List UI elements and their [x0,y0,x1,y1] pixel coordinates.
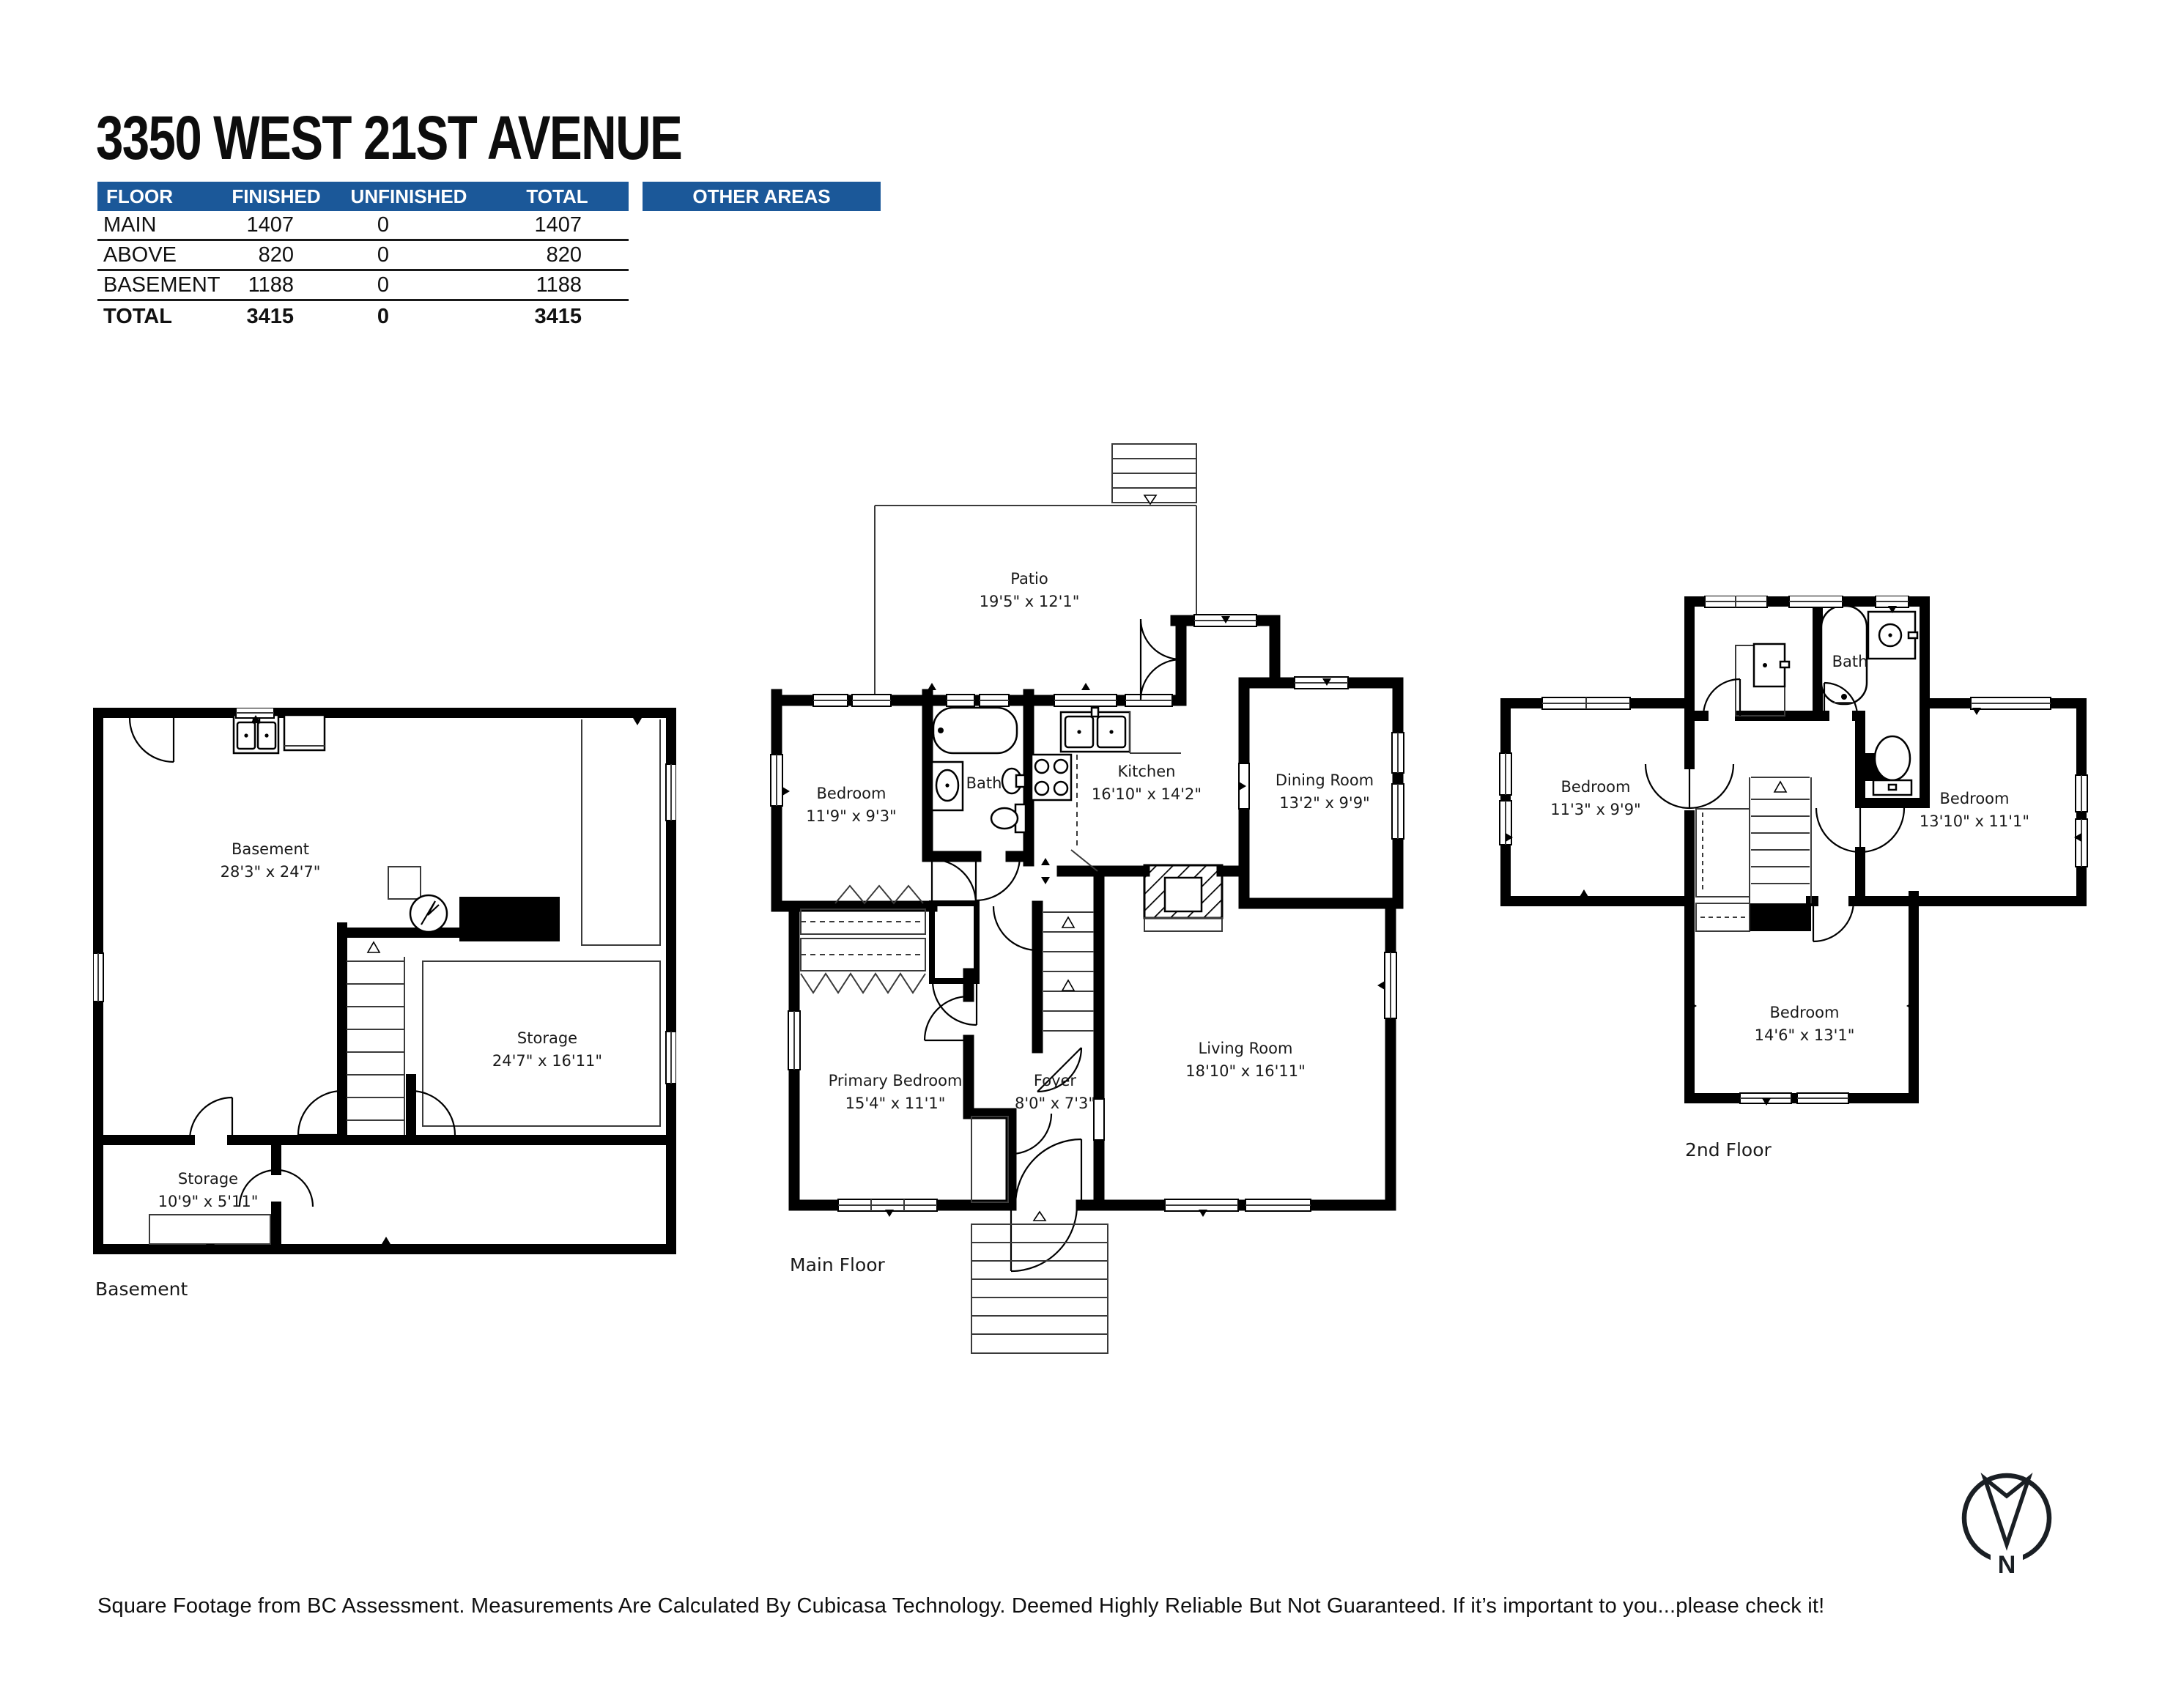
vanity-left-icon [1754,644,1789,686]
room-label-kitchen: Kitchen [1118,763,1176,780]
basement-walls [98,713,671,1249]
room-label-bedroom: Bedroom [817,785,886,802]
deck-stairs-icon [1112,444,1196,504]
pedestal-sink-icon [932,762,963,810]
main-stairs-icon [1043,912,1094,1031]
col-header-floor: FLOOR [97,185,221,208]
fireplace-icon [1144,865,1222,931]
row-above-unfinished: 0 [332,243,486,267]
room-dims-living: 18'10" x 16'11" [1185,1062,1306,1080]
row-total-finished: 3415 [221,305,332,329]
area-table: FLOOR FINISHED UNFINISHED TOTAL MAIN 140… [97,182,629,332]
room-dims-storage-2: 10'9" x 5'11" [158,1193,259,1210]
wall-sink-icon [1002,769,1025,793]
other-areas-header: OTHER AREAS [643,182,881,211]
electrical-panel-icon [410,895,447,932]
room-dims-dining: 13'2" x 9'9" [1279,794,1369,812]
appliance-icon [284,715,325,750]
page-title: 3350 WEST 21ST AVENUE [96,103,681,174]
row-main-finished: 1407 [221,213,332,237]
floorplan-label-second: 2nd Floor [1685,1139,1772,1160]
stove-icon [1032,755,1097,871]
table-row-total: TOTAL 3415 0 3415 [97,301,629,332]
row-main-unfinished: 0 [332,213,486,237]
row-basement-unfinished: 0 [332,273,486,297]
table-row-above: ABOVE 820 0 820 [97,241,629,271]
room-dims-kitchen: 16'10" x 14'2" [1092,785,1202,803]
second-floorplan: Bath Bedroom 11'3" x 9'9" Bedroom 13'10"… [1498,596,2095,1108]
room-dims-basement: 28'3" x 24'7" [221,863,321,881]
row-main-total: 1407 [486,213,629,237]
row-total-total: 3415 [486,305,629,329]
row-above-finished: 820 [221,243,332,267]
row-main-floor: MAIN [97,213,221,237]
basement-floorplan: Basement 28'3" x 24'7" Storage 24'7" x 1… [93,708,676,1254]
room-label-primary: Primary Bedroom [829,1072,963,1089]
room-label-storage-1: Storage [517,1029,577,1047]
row-above-total: 820 [486,243,629,267]
bathtub-icon [933,708,1017,753]
disclaimer-text: Square Footage from BC Assessment. Measu… [97,1594,1824,1618]
room-dims-primary: 15'4" x 11'1" [845,1095,946,1112]
room-dims-bedroom-left: 11'3" x 9'9" [1550,801,1640,818]
utility-box-icon [388,867,421,899]
row-total-floor: TOTAL [97,305,221,329]
room-dims-bedroom: 11'9" x 9'3" [806,807,896,825]
room-label-bath2: Bath [1832,653,1868,670]
room-label-bedroom-left: Bedroom [1561,778,1631,796]
stair-void [1750,903,1811,931]
room-label-foyer: Foyer [1034,1072,1077,1089]
row-basement-floor: BASEMENT [97,273,221,297]
basement-windows [93,708,676,1084]
floorplan-label-main: Main Floor [790,1254,885,1276]
room-label-patio: Patio [1010,570,1048,588]
vanity-right-icon [1868,612,1917,659]
col-header-finished: FINISHED [221,185,332,208]
kitchen-sink-icon [1061,708,1181,753]
second-stairs-icon [1750,777,1811,903]
room-label-bedroom-bottom: Bedroom [1770,1004,1840,1021]
row-basement-total: 1188 [486,273,629,297]
chimney-block [459,897,560,941]
col-header-unfinished: UNFINISHED [332,185,486,208]
room-dims-bedroom-right: 13'10" x 11'1" [1920,812,2029,830]
compass-icon: N [1947,1459,2068,1580]
room-dims-foyer: 8'0" x 7'3" [1015,1095,1095,1112]
room-dims-bedroom-bottom: 14'6" x 13'1" [1755,1026,1855,1044]
room-dims-patio: 19'5" x 12'1" [980,593,1080,610]
row-total-unfinished: 0 [332,305,486,329]
table-row-basement: BASEMENT 1188 0 1188 [97,271,629,301]
room-label-storage-2: Storage [178,1170,238,1188]
room-label-basement: Basement [232,840,309,858]
toilet2-icon [1873,736,1911,795]
front-steps-icon [971,1212,1108,1353]
room-label-bath: Bath [966,774,1002,792]
col-header-total: TOTAL [486,185,629,208]
compass-north-letter: N [1998,1551,2016,1579]
row-basement-finished: 1188 [221,273,332,297]
main-floorplan: Patio 19'5" x 12'1" Bedroom 11'9" x 9'3"… [769,440,1429,1363]
floorplan-label-basement: Basement [95,1278,188,1300]
stairs-icon [347,957,404,1135]
stairs-up-arrow [368,942,380,952]
room-label-bedroom-right: Bedroom [1940,790,2010,807]
room-dims-storage-1: 24'7" x 16'11" [492,1052,602,1070]
area-table-header: FLOOR FINISHED UNFINISHED TOTAL [97,182,629,211]
room-label-living: Living Room [1199,1040,1293,1057]
room-label-dining: Dining Room [1276,771,1374,789]
row-above-floor: ABOVE [97,243,221,267]
toilet-icon [991,804,1026,832]
table-row-main: MAIN 1407 0 1407 [97,211,629,241]
